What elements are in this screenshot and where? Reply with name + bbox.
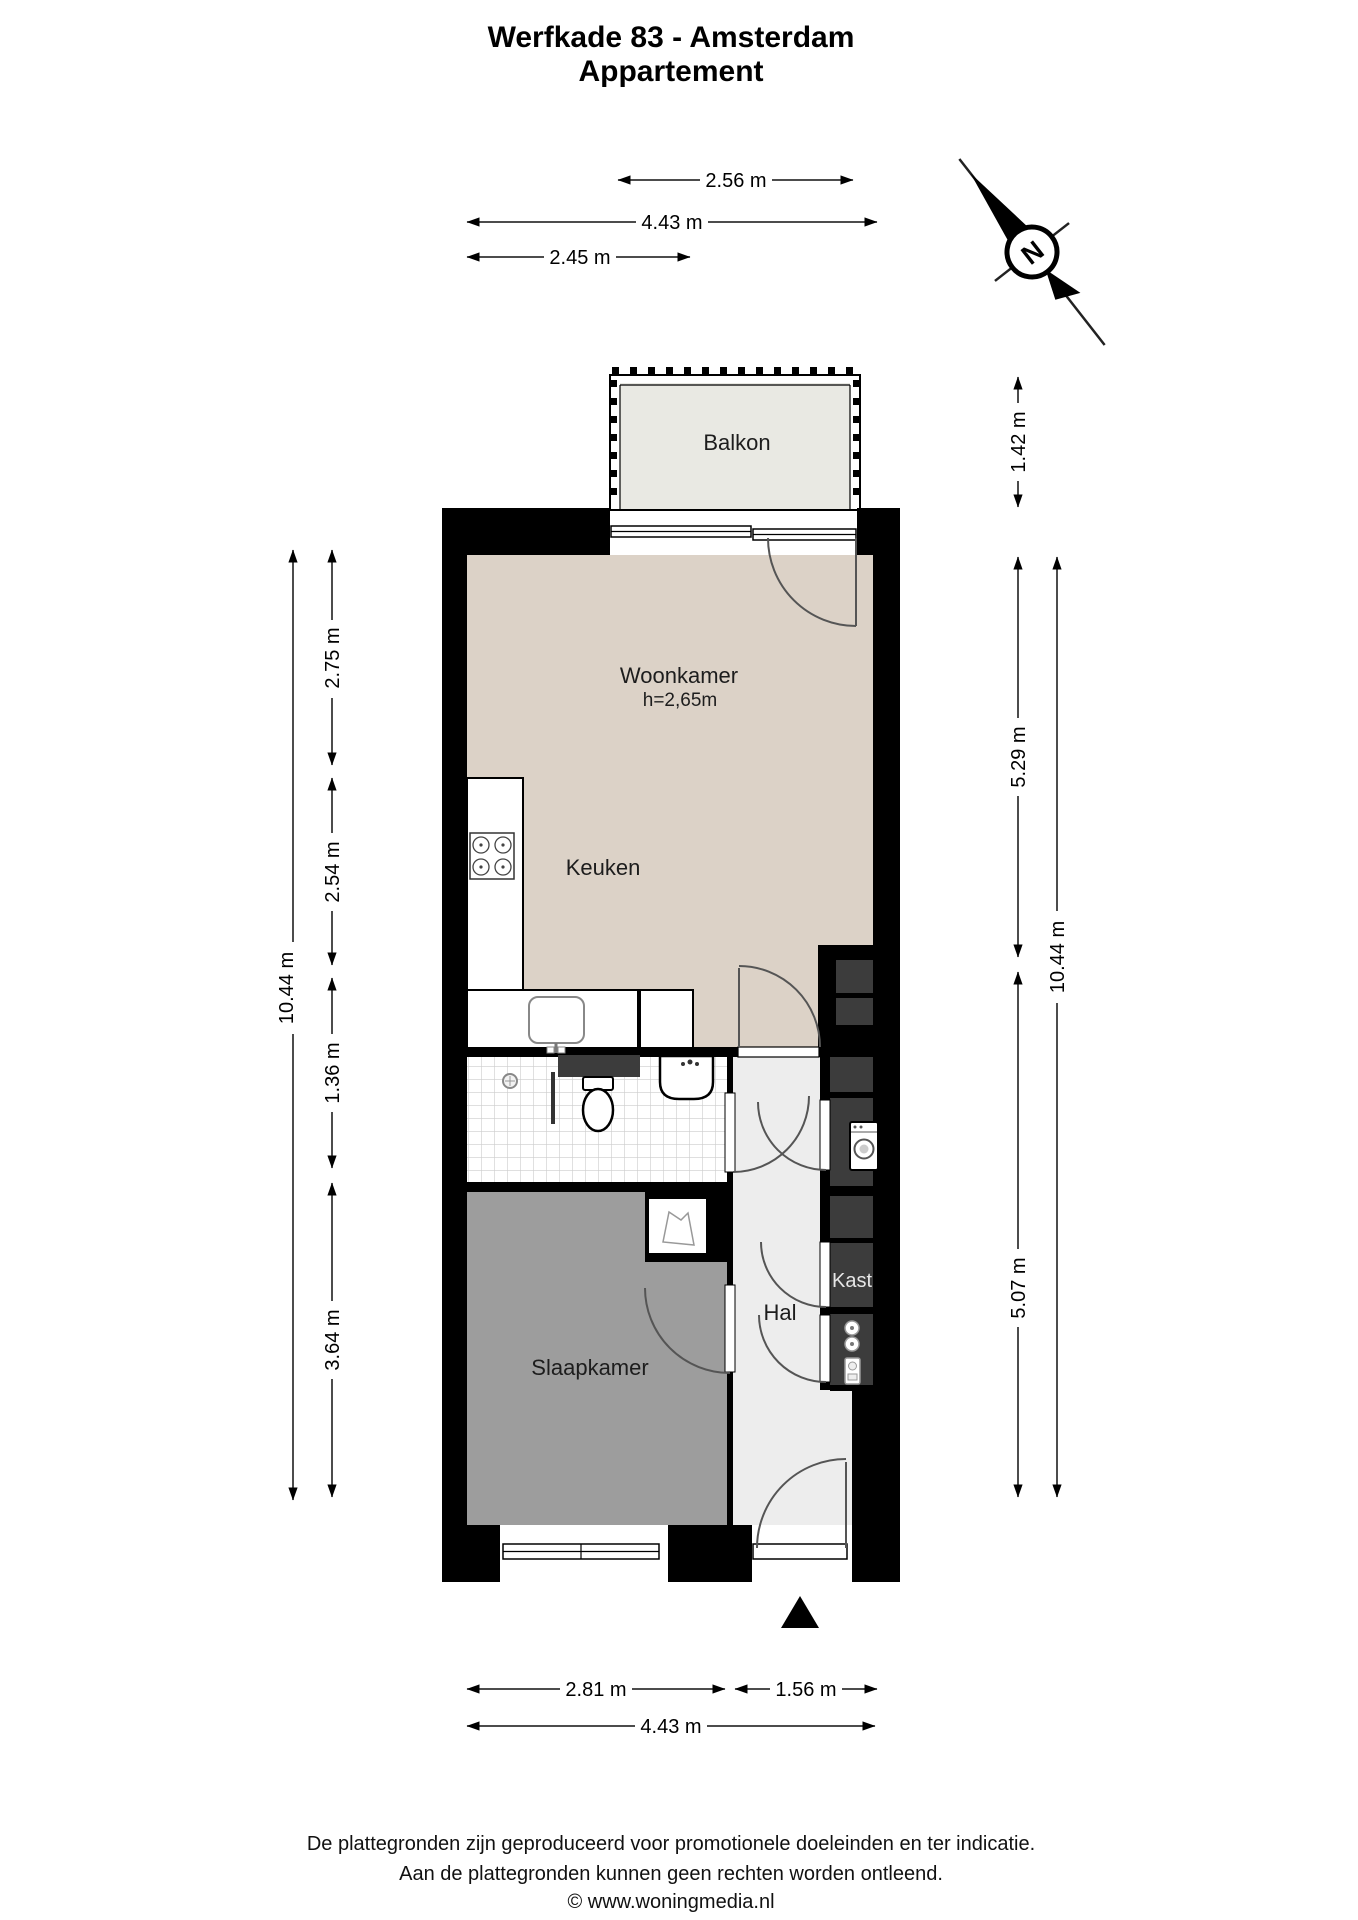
kitchen-appliance (640, 990, 693, 1048)
slaapkamer-label: Slaapkamer (531, 1355, 648, 1380)
wardrobe-icon (648, 1198, 707, 1254)
floorplan-drawing: Werfkade 83 - Amsterdam Appartement N (0, 0, 1358, 1920)
dim-bottom-left: 2.81 m (565, 1679, 626, 1701)
balkon-label: Balkon (703, 430, 770, 455)
hal-label: Hal (763, 1300, 796, 1325)
dim-left-2: 2.54 m (322, 841, 344, 902)
floorplan-page: Werfkade 83 - Amsterdam Appartement N (0, 0, 1358, 1920)
washbasin-icon (660, 1056, 713, 1099)
keuken-label: Keuken (566, 855, 641, 880)
shaft-compartment (836, 960, 873, 993)
footer-line-2: Aan de plattegronden kunnen geen rechten… (399, 1863, 943, 1885)
dim-right-1: 5.29 m (1008, 726, 1030, 787)
dim-left-3: 1.36 m (322, 1042, 344, 1103)
dim-right-2: 5.07 m (1008, 1257, 1030, 1318)
stove-icon (470, 833, 514, 879)
page-title-type: Appartement (578, 55, 763, 88)
dim-left-total: 10.44 m (276, 952, 298, 1024)
kast-label: Kast (832, 1270, 872, 1292)
footer-line-1: De plattegronden zijn geproduceerd voor … (307, 1833, 1035, 1855)
hall-floor-entry (733, 1390, 852, 1525)
toilet-icon (583, 1077, 613, 1131)
washing-machine-icon (850, 1122, 878, 1170)
hall-floor (733, 1057, 820, 1390)
footer-copyright: © www.woningmedia.nl (567, 1891, 774, 1913)
woonkamer-label: Woonkamer (620, 663, 738, 688)
kitchen-counter (467, 778, 523, 990)
entrance-arrow-icon (781, 1596, 819, 1628)
woonkamer-floor (467, 555, 873, 1047)
shaft-compartment (836, 998, 873, 1025)
dim-right-total: 10.44 m (1047, 921, 1069, 993)
bathroom-cabinet (558, 1055, 640, 1077)
dim-left-1: 2.75 m (322, 627, 344, 688)
shower-drain-icon (503, 1074, 517, 1088)
compass-rose-icon: N (922, 130, 1141, 374)
dim-bottom-right: 1.56 m (775, 1679, 836, 1701)
dim-top-balcony: 2.56 m (705, 170, 766, 192)
dim-top-total: 4.43 m (641, 212, 702, 234)
dim-top-left: 2.45 m (549, 247, 610, 269)
dim-right-balcony: 1.42 m (1008, 411, 1030, 472)
closet-block (830, 1057, 873, 1092)
dim-bottom-total: 4.43 m (640, 1716, 701, 1738)
footer-disclaimer: De plattegronden zijn geproduceerd voor … (307, 1833, 1035, 1913)
page-title-address: Werfkade 83 - Amsterdam (488, 21, 855, 54)
woonkamer-height-label: h=2,65m (643, 690, 717, 711)
dim-left-4: 3.64 m (322, 1309, 344, 1370)
closet-block (830, 1196, 873, 1238)
